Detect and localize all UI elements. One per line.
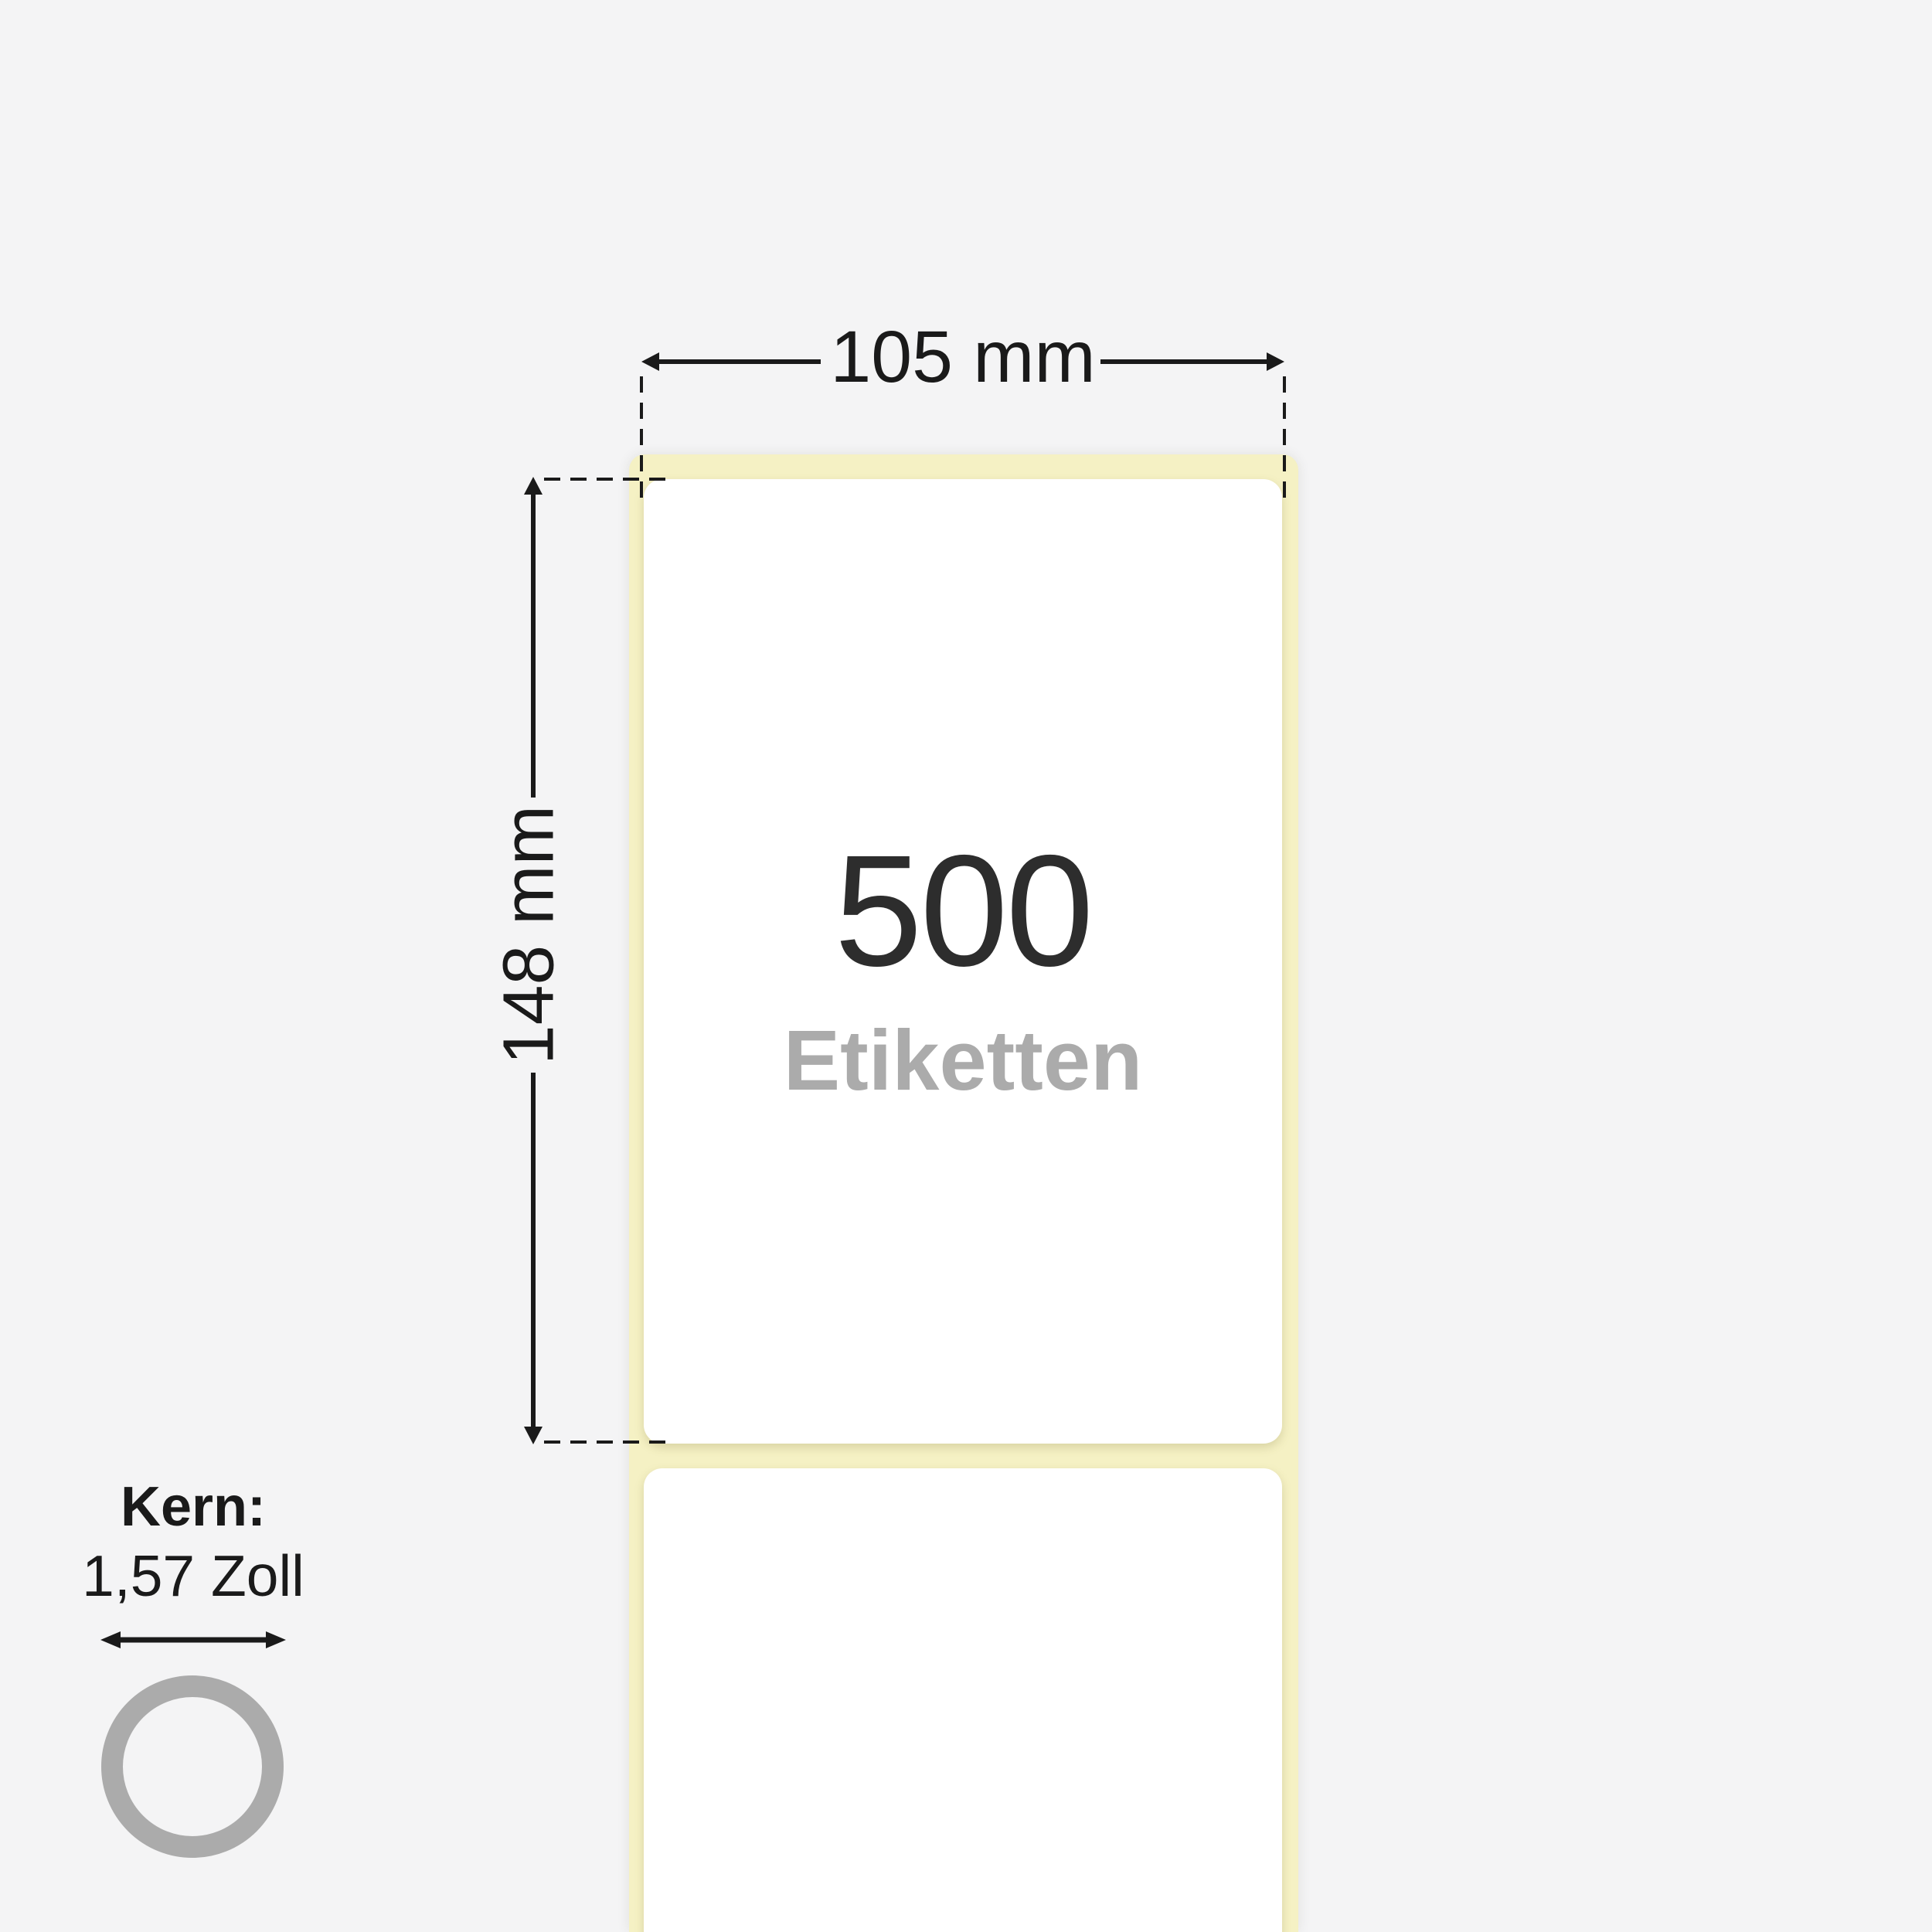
core-diameter-annotation (100, 1631, 286, 1847)
width-arrow-left-icon (641, 352, 659, 371)
core-info: Kern: 1,57 Zoll (31, 1472, 355, 1610)
height-arrow-bottom-icon (524, 1427, 543, 1444)
label-roll-diagram: 500 Etiketten 105 mm 148 mm (0, 0, 1932, 1932)
core-arrow-left-icon (100, 1631, 121, 1648)
core-ring-icon (112, 1686, 273, 1847)
dimension-annotations (0, 0, 1932, 1932)
height-dimension-label: 148 mm (488, 798, 570, 1073)
width-arrow-right-icon (1267, 352, 1284, 371)
width-dimension-label: 105 mm (808, 315, 1117, 400)
core-arrow-right-icon (266, 1631, 286, 1648)
core-info-title: Kern: (31, 1472, 355, 1542)
height-arrow-top-icon (524, 477, 543, 495)
core-info-value: 1,57 Zoll (31, 1542, 355, 1610)
